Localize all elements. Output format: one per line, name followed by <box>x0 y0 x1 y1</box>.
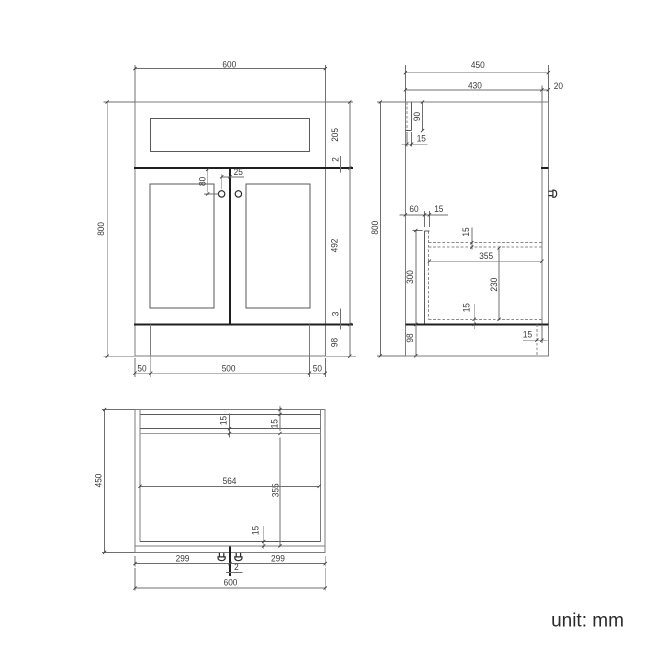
svg-text:15: 15 <box>523 330 532 340</box>
svg-text:500: 500 <box>222 363 236 373</box>
svg-text:800: 800 <box>96 222 106 236</box>
svg-text:60: 60 <box>409 204 418 214</box>
svg-text:430: 430 <box>468 80 482 90</box>
svg-text:355: 355 <box>271 483 281 497</box>
svg-text:80: 80 <box>197 177 207 186</box>
svg-text:450: 450 <box>94 474 104 488</box>
svg-text:98: 98 <box>330 338 340 347</box>
svg-text:15: 15 <box>250 526 260 535</box>
svg-text:50: 50 <box>137 363 146 373</box>
svg-text:15: 15 <box>434 204 443 214</box>
svg-text:unit: mm: unit: mm <box>551 611 624 632</box>
svg-text:205: 205 <box>330 128 340 142</box>
svg-text:299: 299 <box>271 554 285 564</box>
svg-text:90: 90 <box>412 112 422 121</box>
svg-text:2: 2 <box>331 157 341 162</box>
svg-text:355: 355 <box>479 251 493 261</box>
svg-text:230: 230 <box>489 278 499 292</box>
svg-text:600: 600 <box>224 578 238 588</box>
svg-text:800: 800 <box>370 221 380 235</box>
svg-text:15: 15 <box>461 227 471 236</box>
svg-text:15: 15 <box>462 303 472 312</box>
svg-text:15: 15 <box>269 419 279 428</box>
svg-text:564: 564 <box>223 476 237 486</box>
svg-text:20: 20 <box>554 81 563 91</box>
svg-text:50: 50 <box>313 363 322 373</box>
svg-text:299: 299 <box>176 554 190 564</box>
svg-text:492: 492 <box>330 239 340 253</box>
svg-text:450: 450 <box>471 60 485 70</box>
svg-text:2: 2 <box>234 562 239 572</box>
svg-text:98: 98 <box>405 333 415 342</box>
svg-text:15: 15 <box>219 416 229 425</box>
svg-text:300: 300 <box>405 270 415 284</box>
svg-text:25: 25 <box>234 167 243 177</box>
svg-text:600: 600 <box>222 59 236 69</box>
svg-text:15: 15 <box>417 133 426 143</box>
svg-text:3: 3 <box>331 312 341 317</box>
